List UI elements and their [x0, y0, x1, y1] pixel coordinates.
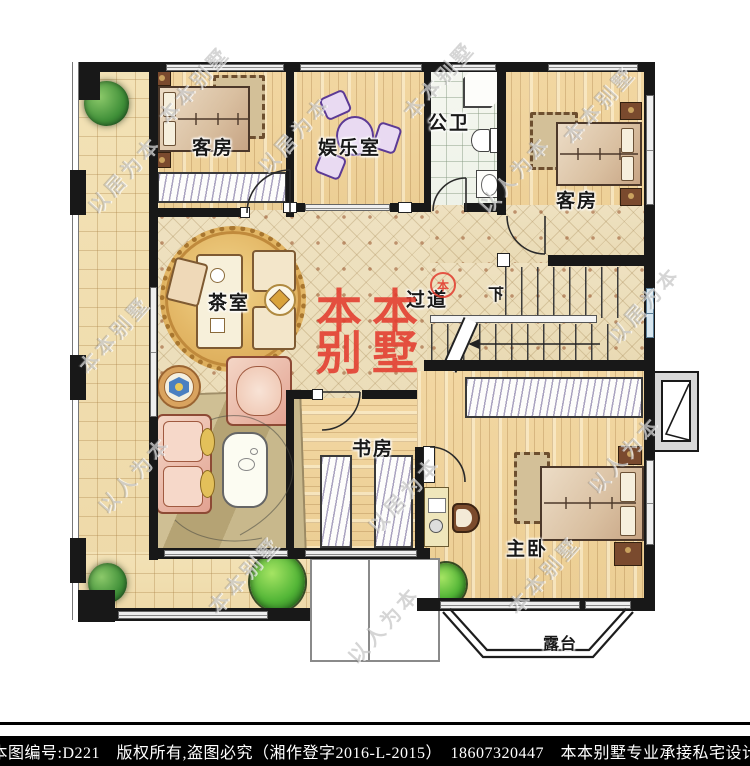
floor-plan-canvas: 下: [0, 0, 750, 766]
footer-text: 本图编号:D221 版权所有,盗图必究（湘作登字2016-L-2015） 186…: [0, 739, 750, 763]
label-study: 书房: [352, 434, 394, 461]
label-tea: 茶室: [208, 288, 250, 315]
label-bath: 公卫: [428, 108, 470, 135]
footer-bar: 本图编号:D221 版权所有,盗图必究（湘作登字2016-L-2015） 186…: [0, 736, 750, 766]
label-guest2: 客房: [556, 186, 598, 213]
brand-logo-line2: 别墅: [312, 332, 432, 374]
footer-divider: [0, 722, 750, 725]
linework-overlay: [0, 0, 750, 766]
brand-seal: 本: [430, 272, 456, 298]
brand-logo: 本本 别墅: [312, 290, 432, 375]
label-entertainment: 娱乐室: [318, 133, 381, 160]
label-master: 主卧: [506, 534, 548, 561]
brand-seal-char: 本: [437, 277, 449, 294]
label-terrace: 露台: [543, 630, 577, 654]
label-guest1: 客房: [192, 133, 234, 160]
